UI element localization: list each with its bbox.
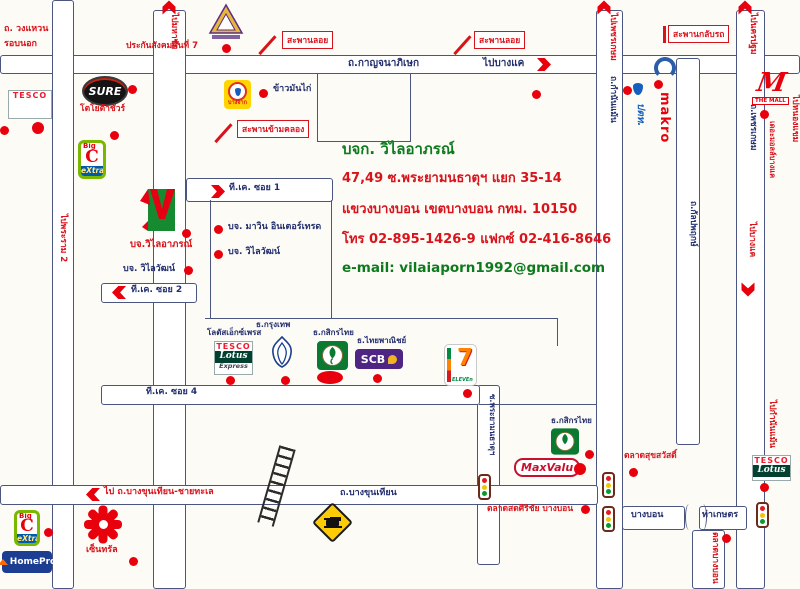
kalpapruek-road-label: ถ.กัลปพฤกษ์: [688, 201, 697, 247]
canal-bridge-tick: [214, 123, 232, 143]
bigc-c-text: C: [81, 151, 103, 165]
marker-dot: [214, 225, 223, 234]
marker-dot: [129, 557, 138, 566]
scb-text: SCB: [361, 353, 385, 366]
marker-dot: [629, 468, 638, 477]
wilaiwat-label-right: บจ. วิไลวัฒน์: [228, 248, 280, 258]
tesco-text: TESCO: [215, 342, 252, 351]
homepro-roof-icon: [0, 559, 8, 565]
marker-dot: [722, 534, 731, 543]
marker-dot: [281, 376, 290, 385]
tk-soi1-label: ที.เค. ซอย 1: [229, 184, 280, 194]
bangbon-direction-map: ถ. วงแหวน รอบนอก ประกันสังคมพื้นที่ 7 ไป…: [0, 0, 800, 589]
bank-block-top-line: [205, 318, 557, 319]
vilaiaporn-v-logo: [138, 183, 178, 239]
lotus-text: Lotus: [753, 465, 790, 477]
marker-dot: [0, 126, 9, 135]
traffic-light-icon: [478, 474, 491, 500]
kasikorn-bank-label-2: ธ.กสิกรไทย: [551, 417, 592, 426]
tesco-text: TESCO: [753, 456, 790, 465]
company-phone-line: โทร 02-895-1426-9 แฟกซ์ 02-416-8646: [342, 233, 611, 247]
marker-dot: [184, 266, 193, 275]
block-line-right: [331, 200, 332, 318]
overpass-tick-1: [258, 35, 276, 55]
homepro-logo: HomePro: [2, 551, 52, 573]
canal-line-right: [410, 74, 411, 142]
kamnan-maen-road-label: ถ.กำนันแม้น: [608, 76, 617, 123]
to-bangkhae-south-label: ไปบางแค: [747, 222, 756, 257]
railway-crossing-sign-icon: [312, 502, 353, 543]
kasikorn-bank-logo: [317, 341, 348, 374]
overpass-box-1: สะพานลอย: [282, 31, 333, 49]
seven-stripes-icon: [447, 348, 451, 382]
block-line-left: [210, 200, 211, 318]
tk-soi4-label: ที.เค. ซอย 4: [146, 388, 197, 398]
maxvalu-logo: MaxValu: [514, 458, 580, 477]
phetkasem-road-label: ถ.เพชรเกษม: [748, 104, 757, 150]
traffic-light-icon: [602, 506, 615, 532]
bangchak-caption: บางจาก: [228, 101, 247, 107]
tesco-text: TESCO: [9, 91, 51, 100]
ptt-text: ปตท.: [635, 103, 646, 126]
bigc-extra-text: eXtra: [81, 166, 103, 176]
ring-road-label-line2: รอบนอก: [4, 40, 37, 50]
scb-bank-label: ธ.ไทยพาณิชย์: [357, 337, 406, 346]
marker-dot: [532, 90, 541, 99]
thakaset-segment-label: ท่าเกษตร: [702, 511, 738, 521]
marker-dot: [574, 463, 586, 475]
seven-text: 7: [457, 345, 473, 373]
kasikorn-bank-label: ธ.กสิกรไทย: [313, 329, 354, 338]
toyota-sure-label: โตโยต้าชัวร์: [80, 105, 125, 114]
to-phetkasem-label: ไปเพชรเกษม: [608, 13, 617, 61]
bangkhunthian-road-label: ถ.บางขุนเทียน: [340, 489, 397, 499]
eleven-text: ELEVEn: [452, 377, 473, 383]
ring-road-label-line1: ถ. วงแหวน: [4, 25, 48, 35]
bigc-logo-small: Big C eXtra: [14, 510, 40, 546]
vilaiaporn-sign-label: บจ.วิไลอาภรณ์: [130, 240, 192, 250]
bangkok-bank-lotus-icon: [268, 336, 296, 372]
canal-line-left: [317, 74, 318, 142]
traffic-light-icon: [756, 502, 769, 528]
marker-dot: [128, 85, 137, 94]
bangchak-drop-icon: [235, 88, 241, 96]
marker-dot: [581, 505, 590, 514]
marker-dot: [259, 89, 268, 98]
marker-dot: [373, 374, 382, 383]
marker-dot: [182, 229, 191, 238]
bigc-extra-text: eXtra: [17, 534, 37, 544]
ptt-logo: [623, 80, 643, 99]
bangbon-segment-label: บางบอน: [631, 511, 663, 521]
road-south-stub: [692, 530, 725, 589]
tesco-lotus-logo: TESCO Lotus: [8, 90, 52, 119]
marker-dot: [463, 389, 472, 398]
homepro-text: HomePro: [10, 557, 56, 567]
company-title: บจก. วิไลอาภรณ์: [342, 141, 455, 158]
marker-dot: [32, 122, 44, 134]
marker-dot: [214, 250, 223, 259]
marker-dot: [760, 483, 769, 492]
to-rama2-label: ไปพระราม 2: [58, 214, 67, 262]
bangbon-market-label: ตลาดบางบอน: [710, 532, 719, 584]
to-bangkhunthian-sea-label: ไป ถ.บางขุนเทียน-ชายทะเล: [104, 488, 214, 498]
to-bangkhae-label: ไปบางแค: [483, 58, 524, 69]
tk-soi2-label: ที.เค. ซอย 2: [131, 286, 182, 296]
bigc-extra-logo: Big C eXtra: [78, 140, 106, 179]
marker-dot: [222, 44, 231, 53]
to-mahachai-label: ไปมหาชัย: [169, 13, 178, 49]
company-email-line: e-mail: vilaiaporn1992@gmail.com: [342, 261, 605, 276]
central-starburst-icon: [84, 505, 122, 543]
marker-dot: [226, 376, 235, 385]
kasikorn-bank-logo-2: [551, 428, 579, 459]
praya-monthat-soi-label: ซ.พระยามนธาตุฯ: [487, 394, 496, 455]
mawin-intertrade-label: บจ. มาวิน อินเตอร์เทรด: [228, 223, 321, 233]
express-text: Express: [215, 363, 252, 371]
canal-bridge-box: สะพานข้ามคลอง: [237, 120, 309, 138]
the-mall-bangkhae-label: เดอะมอลล์บางแค: [768, 121, 776, 178]
sure-text: SURE: [89, 85, 122, 98]
bangkok-bank-label: ธ.กรุงเทพ: [256, 321, 290, 330]
bigc-c-text: C: [17, 520, 37, 534]
sirichai-market-label: ตลาดสดศิริชัย บางบอน: [487, 505, 573, 514]
marker-dot: [110, 131, 119, 140]
the-mall-caption: THE MALL: [752, 97, 789, 105]
overpass-tick-2: [453, 35, 471, 55]
to-kamnan-maen-label: ไปกำนันแม้น: [767, 400, 776, 448]
traffic-light-icon: [602, 472, 615, 498]
marker-dot: [44, 528, 53, 537]
ptt-flame-icon: [633, 83, 643, 95]
scb-gold-icon: [388, 355, 397, 364]
marker-dot: [585, 450, 594, 459]
social-security-label: ประกันสังคมพื้นที่ 7: [126, 42, 198, 51]
uturn-bridge-tick: [663, 26, 666, 43]
social-security-office-icon: [208, 3, 244, 47]
overpass-box-2: สะพานลอย: [474, 31, 525, 49]
bank-block-right-line: [557, 318, 558, 346]
lotus-express-label: โลตัสเอ็กซ์เพรส: [207, 329, 261, 338]
chicken-rice-label: ข้าวมันไก่: [273, 85, 311, 95]
bangchak-logo: บางจาก: [224, 80, 251, 109]
marker-dot: [654, 80, 663, 89]
kanchanaphisek-road-label: ถ.กาญจนาภิเษก: [348, 58, 419, 69]
seven-eleven-logo: 7 ELEVEn: [444, 344, 477, 386]
bangchak-ring-icon: [228, 82, 247, 101]
tesco-lotus-logo-2: TESCO Lotus: [752, 455, 791, 481]
the-mall-m-icon: M: [755, 72, 788, 95]
toyota-sure-logo: SURE: [82, 76, 128, 106]
company-address-line1: 47,49 ซ.พระยามนธาตุฯ แยก 35-14: [342, 172, 562, 186]
makro-text: makro: [657, 92, 671, 143]
uturn-arrow-icon: [654, 57, 676, 79]
marker-dot: [760, 110, 769, 119]
road-kalpapruek: [676, 58, 700, 445]
marker-oval: [317, 371, 343, 384]
lotus-express-logo: TESCO Lotus Express: [214, 341, 253, 375]
suksawat-market-label: ตลาดสุขสวัสดิ์: [624, 452, 677, 461]
company-address-line2: แขวงบางบอน เขตบางบอน กทม. 10150: [342, 203, 577, 217]
train-icon: [320, 510, 345, 535]
central-label: เซ็นทรัล: [86, 546, 118, 556]
to-nakhon-pathom-label: ไปนครปฐม: [748, 13, 757, 54]
wilaiwat-label-left: บจ. วิไลวัฒน์: [123, 265, 175, 275]
ptt-dot-icon: [623, 86, 632, 95]
uturn-bridge-box: สะพานกลับรถ: [668, 25, 729, 43]
scb-logo: SCB: [355, 349, 403, 369]
bridge-paren-left: [685, 504, 693, 530]
to-nong-khaem-label: ไปหนองแขม: [790, 95, 799, 142]
